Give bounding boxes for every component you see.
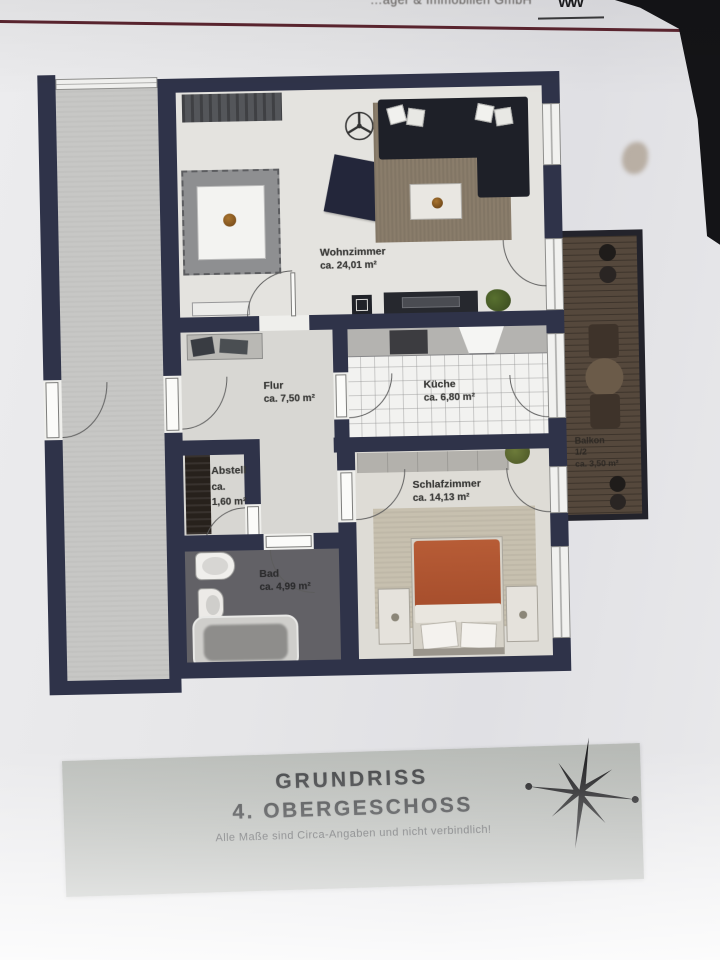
apartment-right-wall [546,310,564,333]
corridor-bottom-wall [49,679,181,696]
sideboard [182,93,283,123]
bad-door-leaf [266,535,312,548]
bad-bedroom-wall [338,522,359,659]
balcony-chair [588,324,619,359]
bedroom-balcony-door [549,466,568,513]
logo-underline [538,16,604,19]
apartment-right-wall [548,418,567,466]
sofa-pillow [406,108,425,127]
living-balcony-door [545,238,564,310]
bad-top-wall [185,534,264,552]
kitchen-door-leaf [335,374,347,417]
storage-shelf [185,454,212,534]
speaker-inner [356,299,368,311]
company-name-text: …ager & Immobilien GmbH [0,0,532,7]
staircase-corridor-floor [55,79,169,683]
company-logo-icon: ẄẄ [546,0,594,11]
room-kueche-label: Küche ca. 6,80 m² [423,377,475,406]
balcony-pot-icon [610,494,626,510]
toilet-bowl [206,595,220,615]
balcony-pot-icon [599,244,616,261]
living-middle-wall [180,316,259,333]
living-door-opening [259,315,309,331]
coffee-table [410,183,463,220]
wardrobe-item [219,339,248,355]
flur-kitchen-wall [334,419,350,452]
bed-sheet [415,603,501,623]
room-bad-label: Bad ca. 4,99 m² [259,566,311,595]
wardrobe [186,333,263,361]
apartment-right-wall [553,638,572,666]
compass-rose-icon [517,725,647,860]
dining-rug [181,169,281,276]
bathtub-basin [203,624,288,662]
room-schlafzimmer-label: Schlafzimmer ca. 14,13 m² [412,477,481,506]
room-wohnzimmer-label: Wohnzimmer ca. 24,01 m² [320,244,386,273]
floor-plan: Balkon 1/2 ca. 3,50 m² [29,41,658,709]
balcony: Balkon 1/2 ca. 3,50 m² [560,229,648,521]
cooktop [389,330,427,355]
corridor-door-leaf [45,382,59,438]
page: { "header": { "company": "…ager & Immobi… [0,0,720,960]
balcony-chair [590,394,621,429]
entry-door-leaf [165,378,179,431]
flur-kitchen-wall [332,314,348,372]
room-flur-extension-floor [260,448,339,536]
living-window [542,103,561,165]
plant-icon [486,289,511,311]
kitchen-counter [347,325,547,357]
tv-icon [402,296,460,308]
sink-icon [195,552,236,581]
balcony-pot-icon [599,266,616,283]
nightstand [506,586,539,643]
balcony-pot-icon [609,476,625,492]
kitchen-window [547,333,567,418]
bed [411,536,505,656]
nightstand [378,588,411,645]
nightstand-knob [391,613,399,621]
middle-lower-wall [183,439,260,456]
coffee-table-bowl-icon [432,197,443,208]
apartment-right-wall [541,71,560,103]
bad-top-wall [313,532,340,549]
tv-lowboard [384,291,478,314]
photographed-paper: …ager & Immobilien GmbH ẄẄ [0,0,720,960]
balcony-table [585,358,624,397]
bad-bedroom-wall [337,452,355,470]
radiator-lowboard [192,301,250,316]
room-abstell-label: Abstell ca. 1,60 m² [211,463,247,509]
speaker-box [352,295,372,315]
apartment-right-wall [543,165,562,238]
apartment-right-wall [550,513,569,546]
bedroom-door-leaf [340,472,353,520]
bedroom-window [551,546,571,638]
ceiling-fan-icon [342,109,377,144]
sofa-pillow [494,107,513,126]
sink-basin [202,557,228,576]
room-balkon-label: Balkon 1/2 ca. 3,50 m² [575,434,619,470]
wardrobe-item [191,337,215,357]
nightstand-knob [519,611,527,619]
sofa-pillow [475,103,495,123]
header-rule [0,20,696,32]
room-flur-label: Flur ca. 7,50 m² [263,378,315,407]
bed-pillow [460,622,497,650]
corridor-window [55,77,157,90]
bed-pillow [420,621,459,651]
